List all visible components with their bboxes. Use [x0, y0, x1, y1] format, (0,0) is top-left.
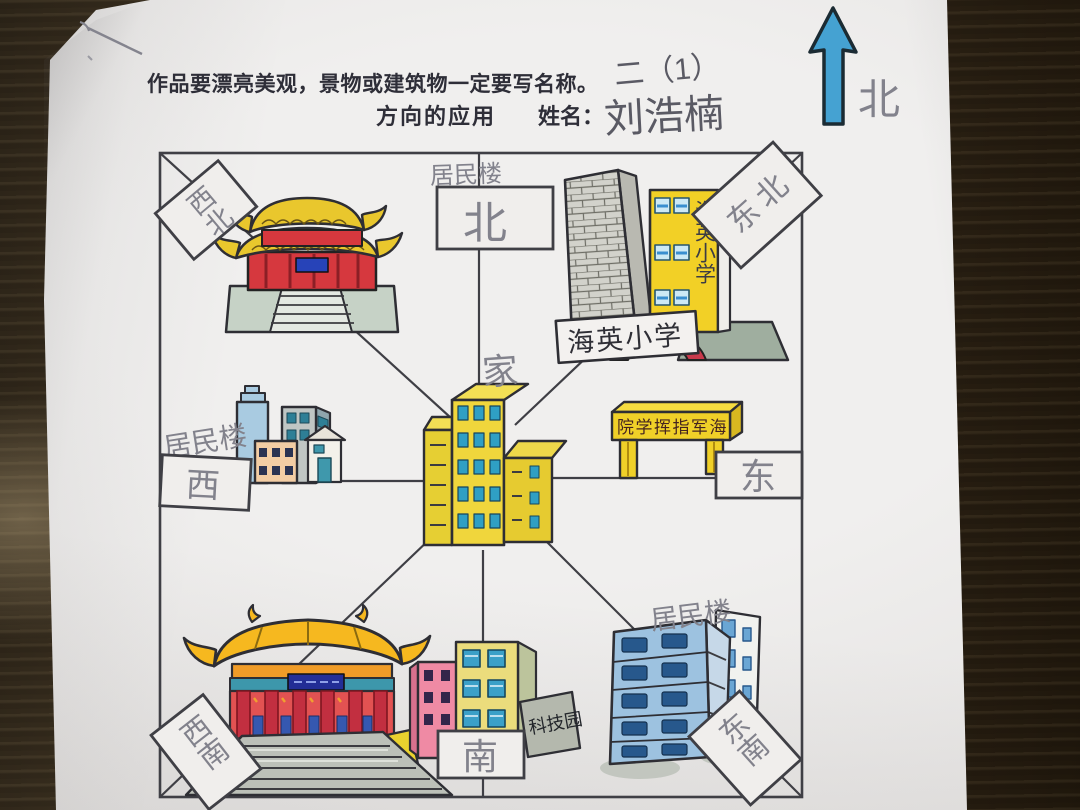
direction-box-east: 东: [716, 452, 802, 498]
direction-box-north: 北: [437, 187, 553, 249]
worksheet-title: 方向的应用: [376, 104, 496, 129]
home-building-center: [424, 384, 566, 545]
class-label: 二（1）: [613, 50, 722, 92]
residential-west: [237, 386, 345, 483]
direction-box-south: 南: [438, 731, 524, 778]
direction-label-south: 南: [462, 736, 498, 777]
direction-label-east: 东: [740, 456, 776, 497]
direction-box-northwest: 西北: [155, 161, 256, 260]
gate-banner-text: 院学挥指军海: [617, 418, 728, 437]
photo-scene: 作品要漂亮美观，景物或建筑物一定要写名称。 二（1） 方向的应用 姓名： 刘浩楠…: [0, 0, 1080, 810]
drawing-layer: 作品要漂亮美观，景物或建筑物一定要写名称。 二（1） 方向的应用 姓名： 刘浩楠…: [0, 0, 1080, 810]
direction-box-west: 西: [160, 455, 252, 511]
student-name: 刘浩楠: [603, 92, 725, 142]
direction-label-west: 西: [185, 466, 221, 506]
pencil-scribble: [80, 22, 142, 60]
home-label: 家: [481, 350, 520, 393]
direction-label-north: 北: [463, 199, 507, 248]
name-label: 姓名：: [538, 104, 604, 129]
compass-north-label: 北: [858, 76, 900, 123]
north-arrow-icon: [810, 8, 856, 124]
instruction-text: 作品要漂亮美观，景物或建筑物一定要写名称。: [147, 72, 599, 96]
